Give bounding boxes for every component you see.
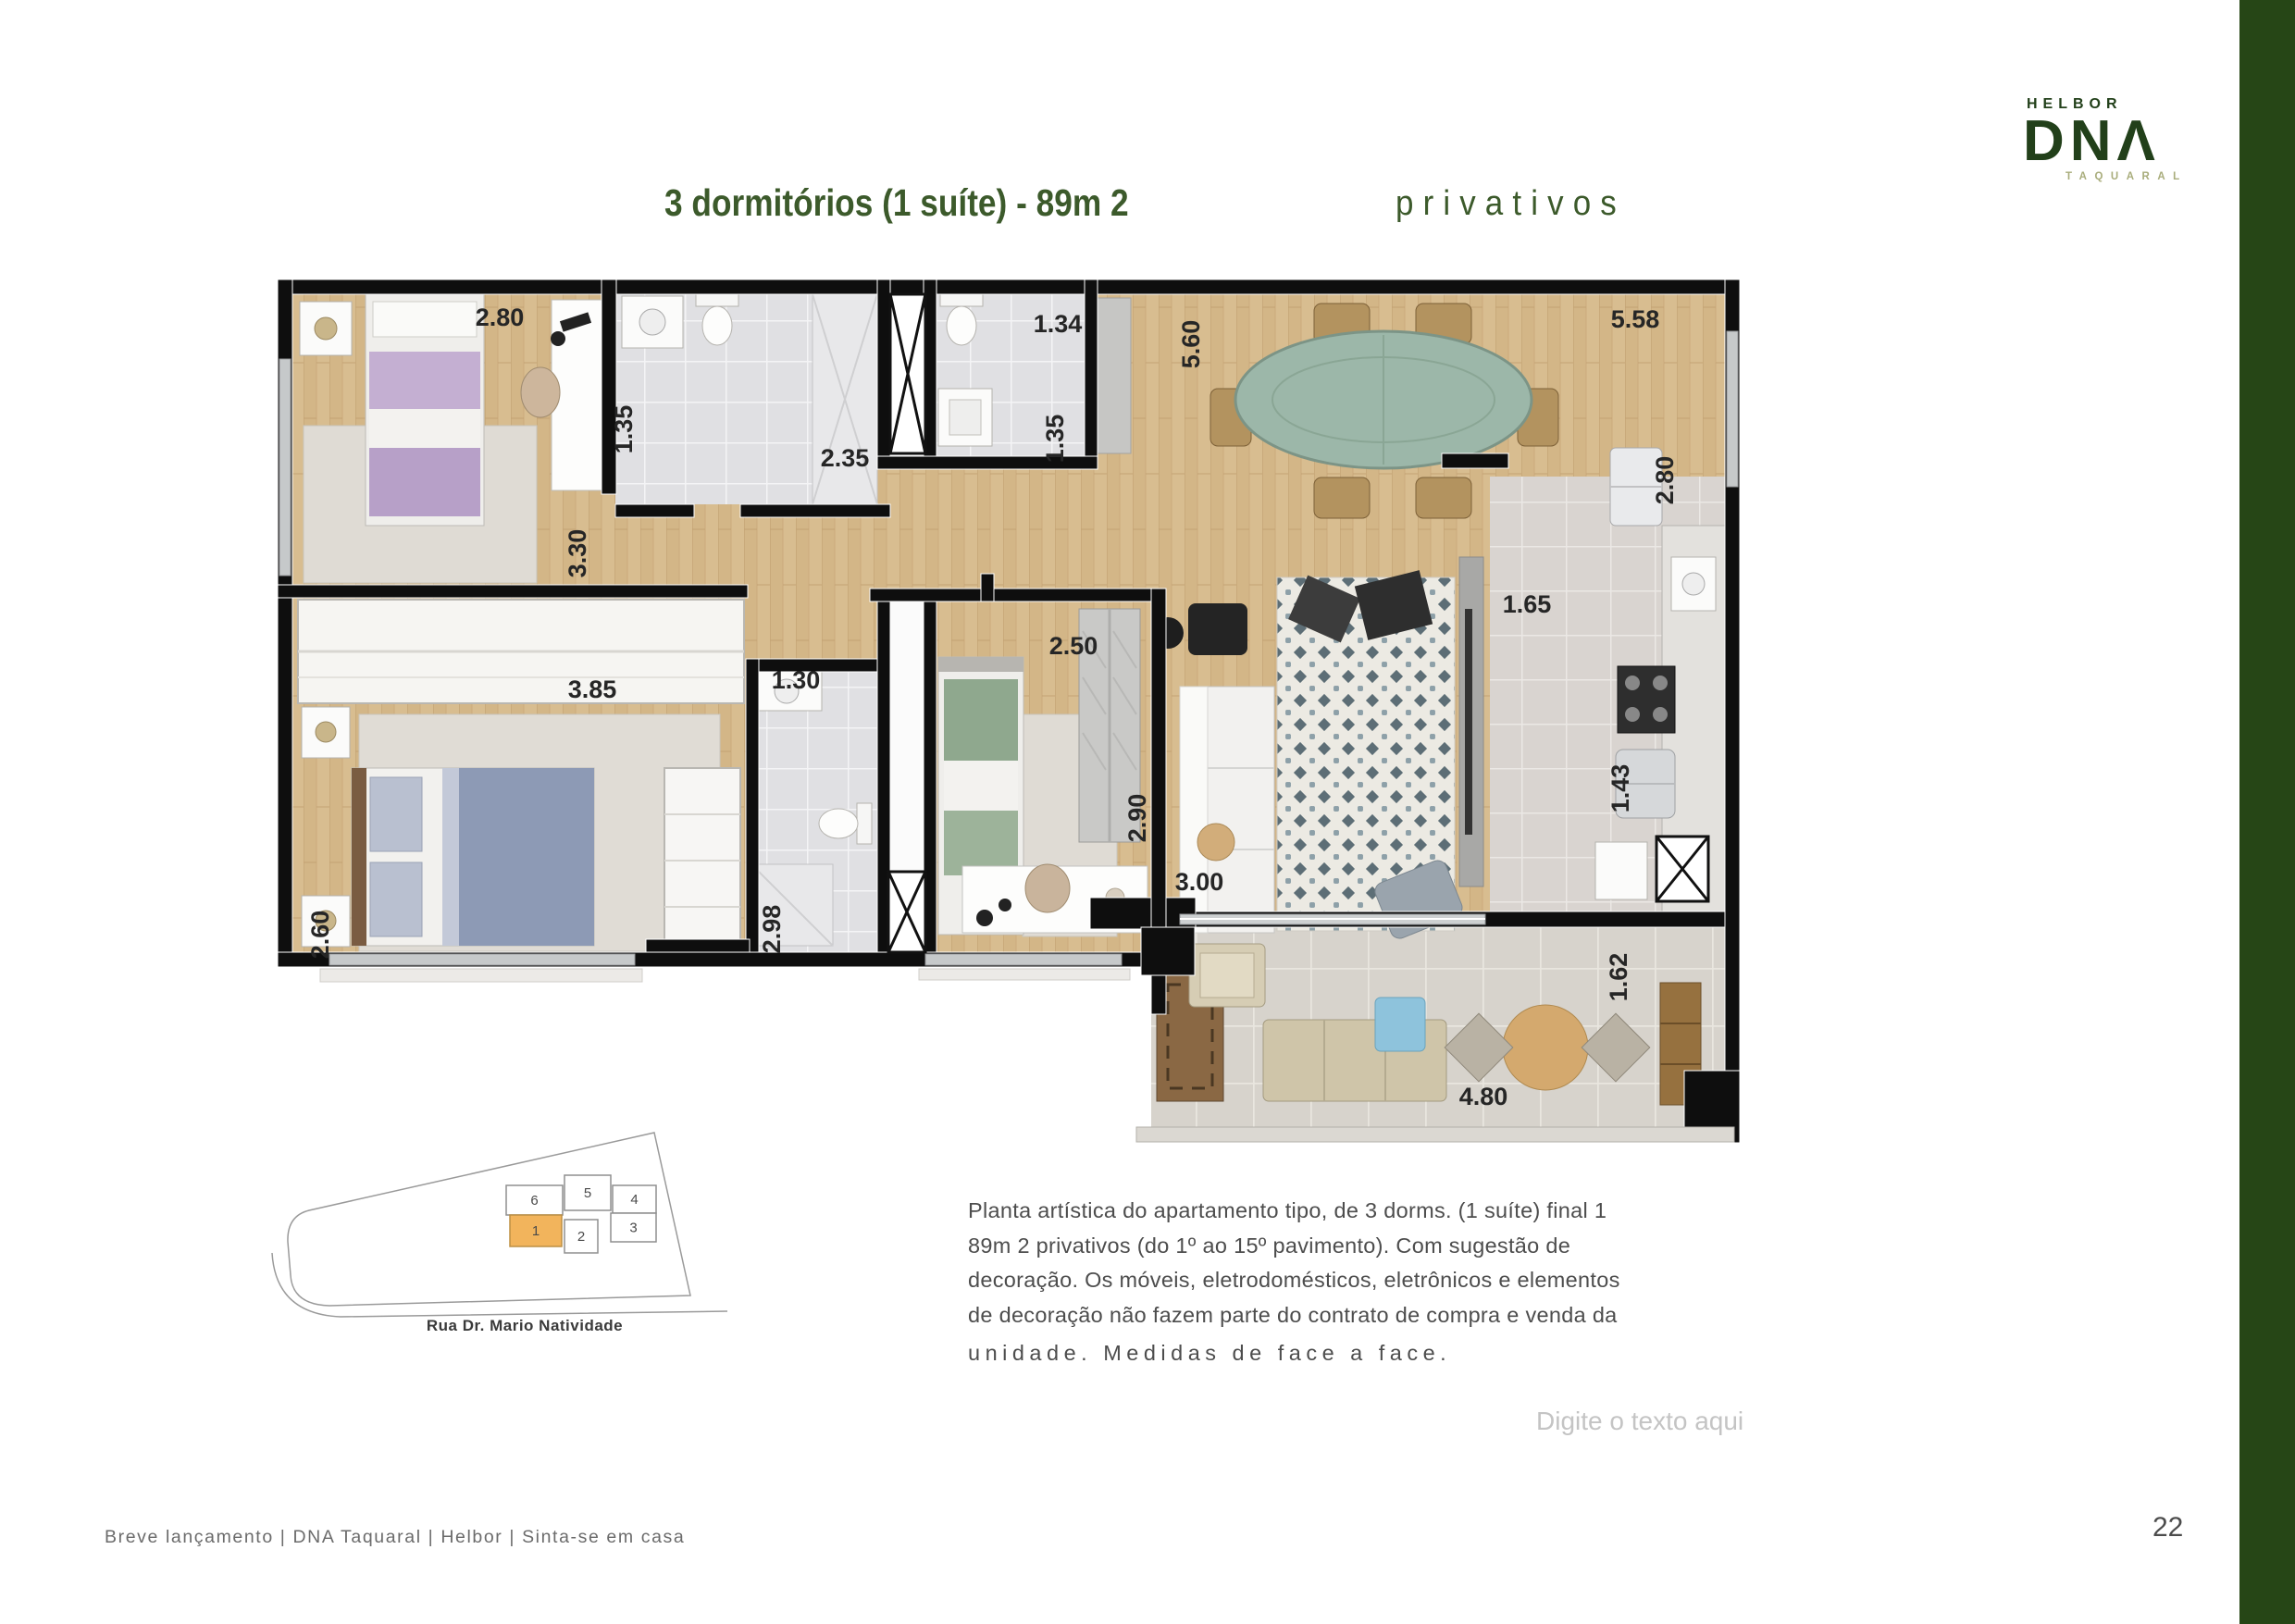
dimension-label: 2.35	[821, 444, 870, 472]
description-text: Planta artística do apartamento tipo, de…	[968, 1194, 1671, 1371]
logo-subname: TAQUARAL	[2065, 171, 2190, 182]
dimension-label: 1.30	[772, 666, 821, 694]
dimension-label: 5.60	[1177, 320, 1205, 369]
site-plan: 654123 Rua Dr. Mario Natividade	[259, 1122, 777, 1353]
suite-furniture	[302, 707, 720, 951]
accent-sidebar	[2239, 0, 2295, 1624]
logo-name: DNΛ	[2023, 115, 2190, 169]
street-label: Rua Dr. Mario Natividade	[427, 1317, 623, 1334]
dimension-label: 1.65	[1503, 590, 1552, 618]
dimension-label: 1.35	[610, 405, 638, 454]
dimension-label: 2.80	[476, 304, 525, 331]
dimension-label: 1.62	[1605, 953, 1632, 1002]
dimension-label: 3.85	[568, 676, 617, 703]
site-unit-label: 5	[584, 1185, 591, 1201]
site-unit-label: 3	[629, 1221, 637, 1236]
page-number: 22	[2152, 1512, 2183, 1543]
sideboard	[1098, 298, 1131, 453]
footer-text: Breve lançamento | DNA Taquaral | Helbor…	[105, 1527, 685, 1548]
description-line: Planta artística do apartamento tipo, de…	[968, 1194, 1671, 1229]
dimension-label: 3.30	[564, 529, 591, 578]
page-title: 3 dormitórios (1 suíte) - 89m 2	[664, 181, 1129, 225]
dimension-label: 1.34	[1034, 310, 1083, 338]
site-unit-label: 2	[577, 1229, 585, 1245]
site-unit-label: 4	[630, 1192, 638, 1208]
floor-plan: 2.801.352.351.341.355.605.582.803.301.65…	[278, 279, 1740, 1145]
suite-closet	[664, 768, 740, 953]
dimension-label: 4.80	[1459, 1083, 1508, 1110]
dimension-label: 2.98	[758, 905, 786, 954]
lot-outline	[272, 1133, 727, 1317]
text-placeholder[interactable]: Digite o texto aqui	[1536, 1407, 1743, 1436]
dimension-label: 1.43	[1606, 764, 1634, 813]
dimension-label: 3.00	[1175, 868, 1224, 896]
dimension-label: 2.90	[1123, 794, 1151, 843]
dimension-label: 1.35	[1041, 415, 1069, 464]
dimension-label: 2.80	[1651, 456, 1679, 505]
description-line: 89m 2 privativos (do 1º ao 15º pavimento…	[968, 1229, 1671, 1264]
description-line: de decoração não fazem parte do contrato…	[968, 1298, 1671, 1333]
description-line: decoração. Os móveis, eletrodomésticos, …	[968, 1263, 1671, 1298]
dimension-label: 2.60	[306, 911, 334, 960]
site-unit-label: 6	[530, 1193, 538, 1209]
description-line: unidade. Medidas de face a face.	[968, 1336, 1671, 1371]
page-subtitle: privativos	[1396, 184, 1626, 224]
logo: HELBOR DNΛ TAQUARAL	[2023, 96, 2190, 182]
site-unit-label: 1	[532, 1223, 540, 1239]
dimension-label: 5.58	[1611, 305, 1660, 333]
dimension-label: 2.50	[1049, 632, 1098, 660]
